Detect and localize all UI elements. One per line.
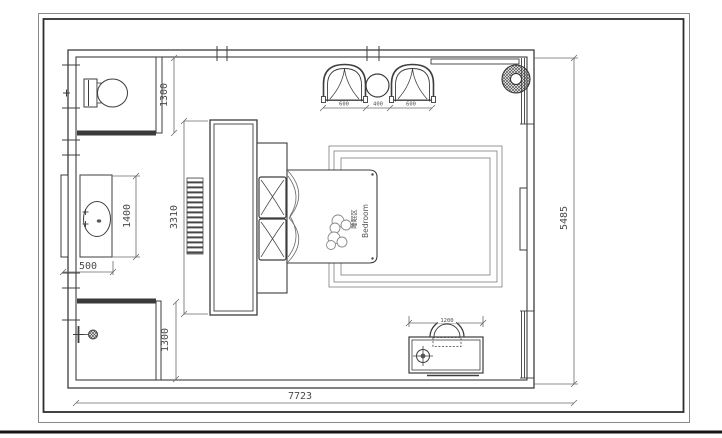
- dim-desk-label: 1200: [440, 318, 453, 324]
- left-wall-pier: [61, 175, 68, 257]
- dim-seat-left-label: 600: [339, 102, 349, 108]
- bed-corner-dot: [371, 173, 373, 175]
- pillow: [259, 219, 286, 260]
- tv-console-hatch: [187, 178, 203, 254]
- bed-corner-dot: [371, 257, 373, 259]
- floor-plan-sheet: 睡眠区 Bedroom: [0, 0, 722, 438]
- dim-room-height-label: 5485: [559, 206, 570, 230]
- right-wall-pier: [520, 188, 527, 250]
- dim-cabinet-label: 3310: [169, 205, 180, 229]
- sink-icon: [80, 175, 112, 257]
- dim-vanity-length-label: 1400: [122, 204, 133, 228]
- side-table-icon: [366, 74, 389, 97]
- floor-plan-canvas: 睡眠区 Bedroom: [0, 0, 722, 438]
- sheet-heavy-rule: [0, 431, 722, 434]
- toilet-icon: [84, 79, 128, 107]
- dim-seat-right-label: 600: [406, 102, 416, 108]
- valve-icon: [63, 90, 70, 97]
- armchair-icon: [390, 65, 436, 103]
- pillow: [259, 177, 286, 218]
- bed-area-label-cn: 睡眠区: [350, 209, 358, 229]
- dim-bath-top-label: 1300: [159, 83, 170, 107]
- wall-console: [431, 59, 519, 64]
- dim-vanity-depth-label: 500: [79, 261, 97, 272]
- shower-icon: [73, 326, 98, 343]
- plant-icon: [502, 65, 530, 93]
- bed-area-label-en: Bedroom: [361, 204, 370, 238]
- dim-seat-table-label: 400: [373, 102, 383, 108]
- bed: 睡眠区 Bedroom: [257, 143, 377, 293]
- wardrobe: [210, 120, 257, 315]
- dim-room-width-label: 7723: [288, 391, 312, 402]
- armchair-icon: [322, 65, 368, 103]
- dim-shower-label: 1300: [160, 328, 171, 352]
